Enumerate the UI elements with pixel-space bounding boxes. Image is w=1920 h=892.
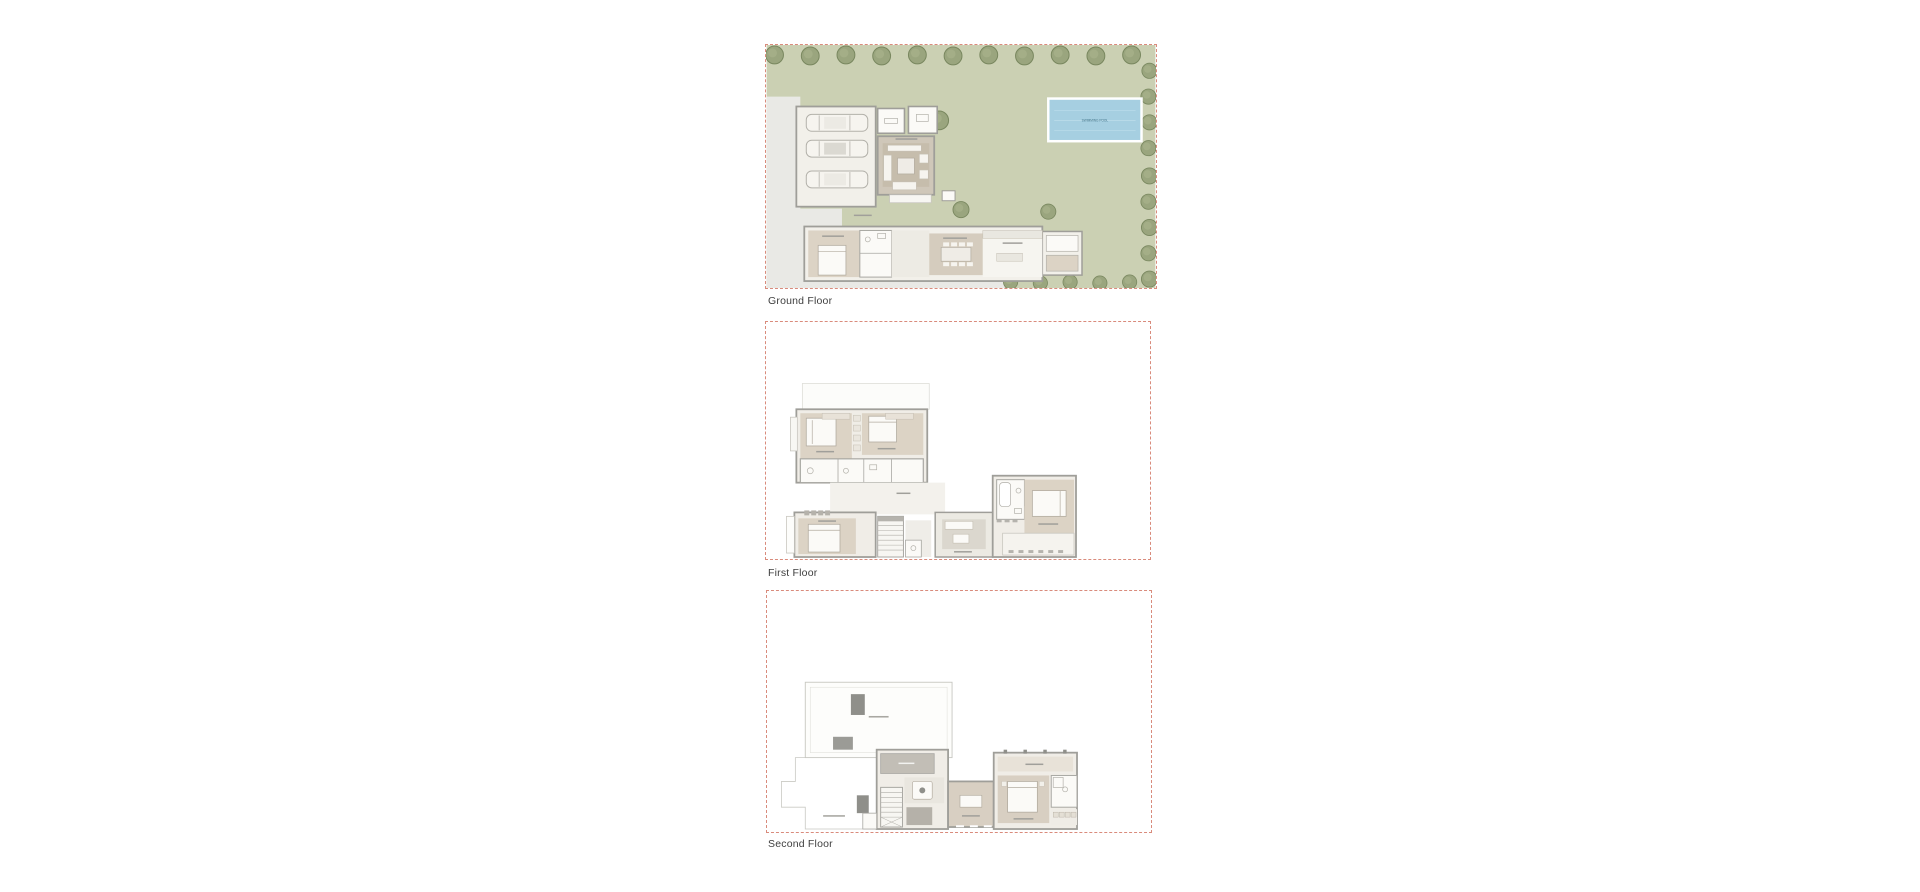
lower-left-bedroom-suite bbox=[786, 510, 875, 557]
coffee-table-icon bbox=[898, 158, 915, 174]
bed-icon bbox=[869, 416, 897, 442]
car-icon bbox=[806, 114, 867, 131]
family-room bbox=[935, 512, 993, 557]
table-icon bbox=[960, 795, 982, 807]
bed-icon bbox=[808, 524, 840, 552]
bathrooms-row bbox=[800, 459, 923, 483]
hall bbox=[830, 483, 945, 515]
stairs bbox=[878, 516, 904, 557]
ground-floor-caption: Ground Floor bbox=[768, 295, 832, 307]
sofa-icon bbox=[884, 155, 892, 181]
bathtub-icon bbox=[1000, 483, 1011, 507]
car-icon bbox=[806, 171, 867, 188]
second-floor-plan-drawing bbox=[767, 591, 1151, 832]
ground-floor-plan-drawing: SWIMMING POOL bbox=[766, 45, 1156, 288]
hallway bbox=[892, 230, 930, 277]
ground-floor-plan-panel: SWIMMING POOL bbox=[765, 44, 1157, 289]
car-icon bbox=[806, 140, 867, 157]
second-floor-caption: Second Floor bbox=[768, 838, 833, 850]
dining-table-icon bbox=[941, 247, 971, 261]
bed-icon bbox=[818, 245, 846, 275]
bathroom bbox=[860, 230, 892, 277]
pool-label: SWIMMING POOL bbox=[1082, 118, 1109, 122]
second-floor-plan-panel bbox=[766, 590, 1152, 833]
master-suite bbox=[993, 476, 1076, 557]
swimming-pool: SWIMMING POOL bbox=[1048, 99, 1141, 142]
entry-room bbox=[878, 108, 905, 133]
bridge-corridor bbox=[948, 781, 994, 827]
bed-icon bbox=[806, 418, 836, 446]
first-floor-caption: First Floor bbox=[768, 567, 817, 579]
upper-master-suite bbox=[994, 750, 1077, 829]
powder-room bbox=[908, 106, 937, 133]
first-floor-plan-panel bbox=[765, 321, 1151, 560]
bed-icon bbox=[1032, 491, 1066, 517]
upper-bedroom-block bbox=[790, 409, 927, 482]
bed-icon bbox=[1008, 781, 1038, 812]
void-outline bbox=[802, 383, 929, 409]
tree-row-right bbox=[1141, 63, 1156, 287]
first-floor-plan-drawing bbox=[766, 322, 1150, 559]
